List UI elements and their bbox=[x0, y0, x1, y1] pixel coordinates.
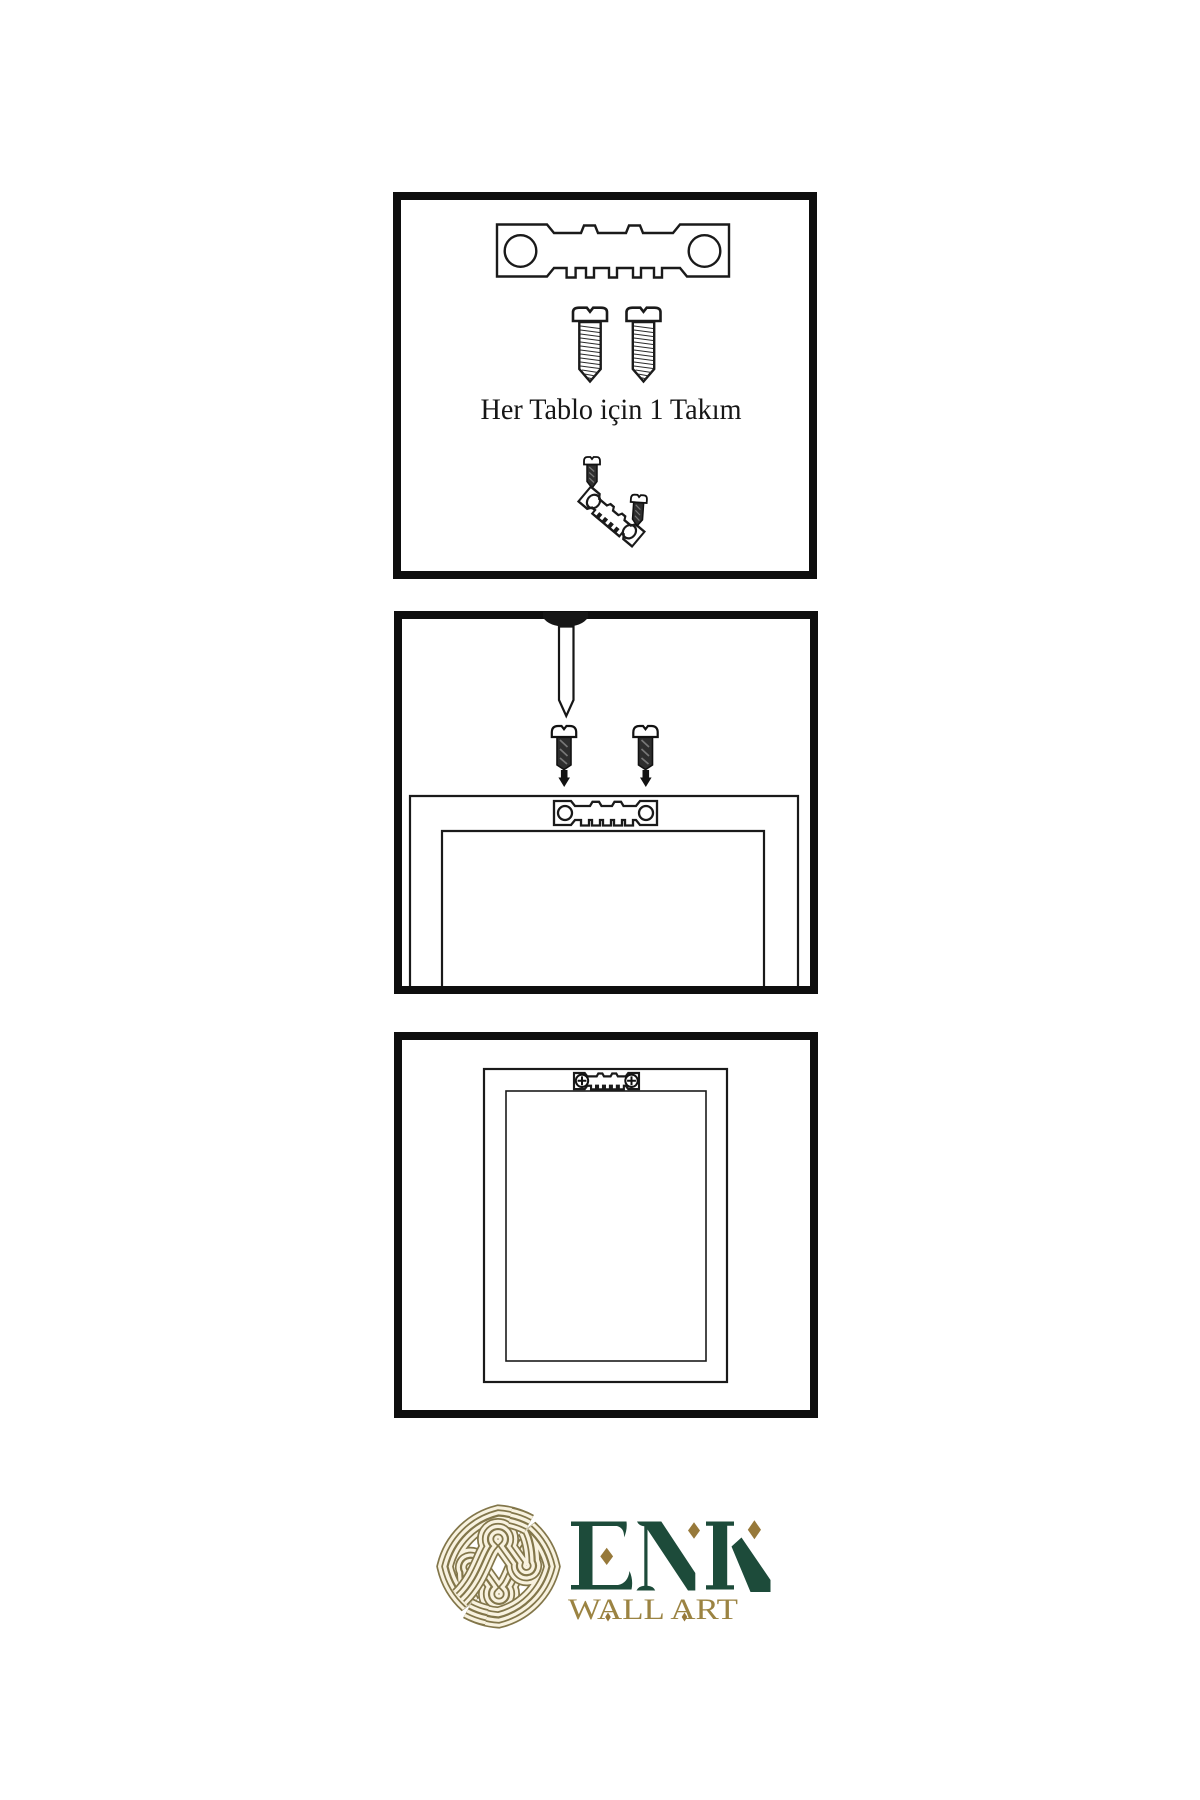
svg-text:WALL ART: WALL ART bbox=[568, 1594, 738, 1626]
svg-text:Her Tablo için 1 Takım: Her Tablo için 1 Takım bbox=[481, 393, 742, 426]
